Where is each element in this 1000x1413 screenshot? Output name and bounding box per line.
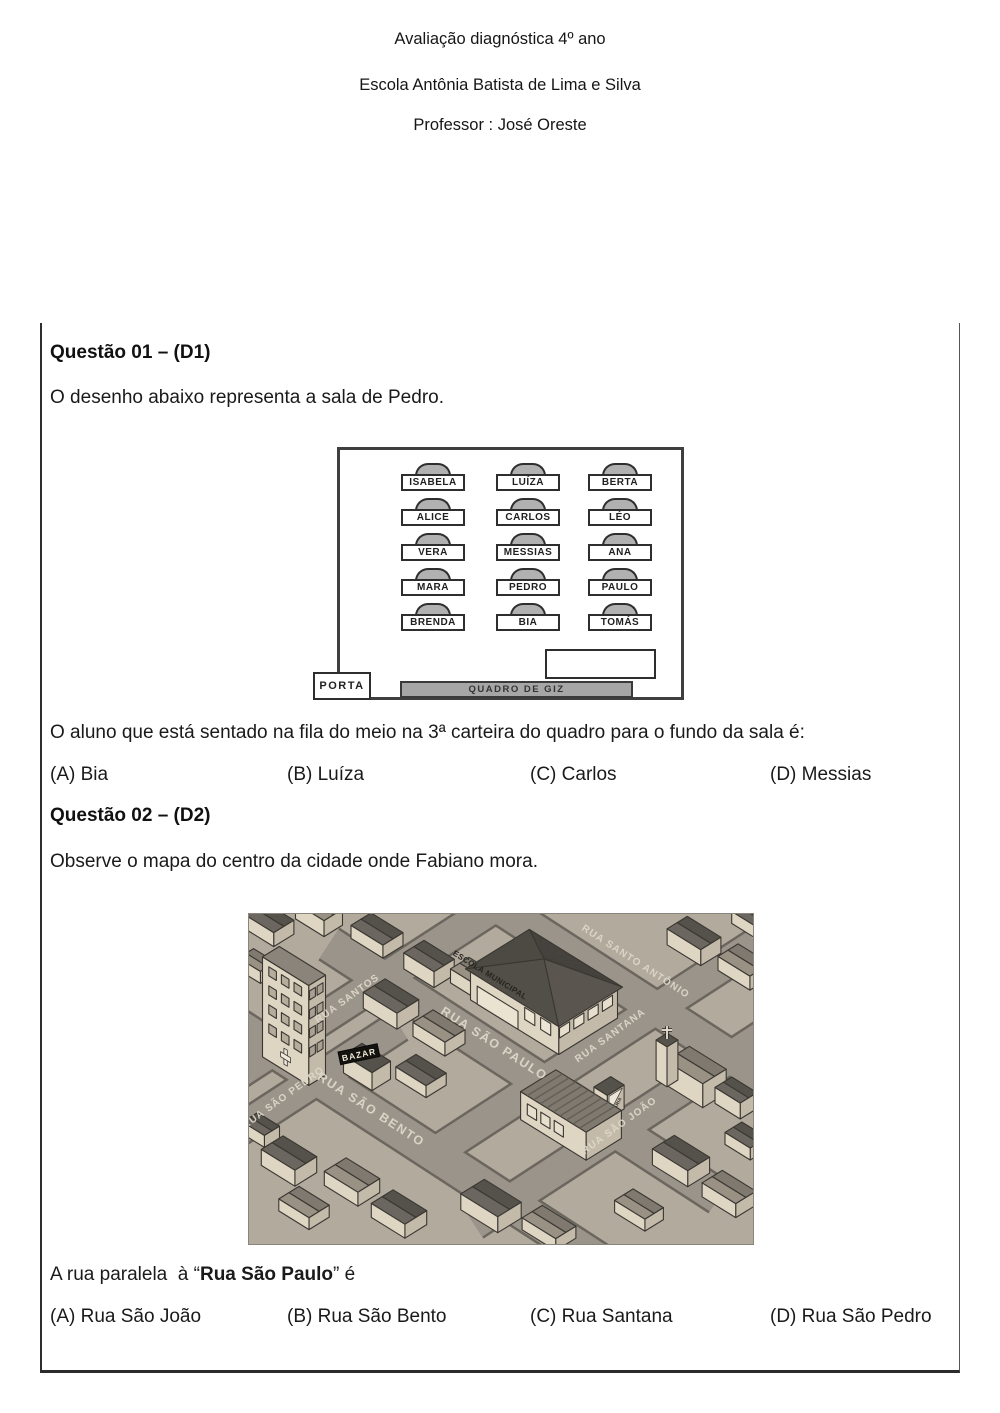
desk-name-plate: PAULO bbox=[588, 579, 652, 596]
classroom-diagram: ISABELALUÍZABERTAALICECARLOSLÉOVERAMESSI… bbox=[337, 447, 684, 700]
question2-title: Questão 02 – (D2) bbox=[50, 805, 211, 827]
option-q1-b: (B) Luíza bbox=[287, 764, 364, 786]
desk-name-plate: LÉO bbox=[588, 509, 652, 526]
city-map-svg: ESCOLA MUNICIPALBAZARPADARIARUA SANTO AN… bbox=[249, 914, 753, 1244]
option-q1-c: (C) Carlos bbox=[530, 764, 617, 786]
desk-luiza: LUÍZA bbox=[496, 463, 560, 491]
question2-intro: Observe o mapa do centro da cidade onde … bbox=[50, 851, 538, 873]
desk-leo: LÉO bbox=[588, 498, 652, 526]
desk-name-plate: LUÍZA bbox=[496, 474, 560, 491]
prompt-suffix: ” é bbox=[333, 1264, 355, 1285]
desk-paulo: PAULO bbox=[588, 568, 652, 596]
page-title: Avaliação diagnóstica 4º ano bbox=[0, 30, 1000, 49]
question1-prompt: O aluno que está sentado na fila do meio… bbox=[50, 722, 805, 744]
option-q2-b: (B) Rua São Bento bbox=[287, 1306, 446, 1328]
question2-prompt: A rua paralela à “Rua São Paulo” é bbox=[50, 1264, 355, 1286]
desk-isabela: ISABELA bbox=[401, 463, 465, 491]
desk-alice: ALICE bbox=[401, 498, 465, 526]
desk-name-plate: BIA bbox=[496, 614, 560, 631]
question1-title: Questão 01 – (D1) bbox=[50, 342, 211, 364]
prompt-prefix: A rua paralela à “ bbox=[50, 1264, 200, 1285]
door-label: PORTA bbox=[313, 672, 371, 700]
question2-options: (A) Rua São João(B) Rua São Bento(C) Rua… bbox=[50, 1306, 958, 1332]
professor-name: Professor : José Oreste bbox=[0, 116, 1000, 135]
desk-name-plate: VERA bbox=[401, 544, 465, 561]
desk-vera: VERA bbox=[401, 533, 465, 561]
desk-pedro: PEDRO bbox=[496, 568, 560, 596]
desk-name-plate: MARA bbox=[401, 579, 465, 596]
option-q1-d: (D) Messias bbox=[770, 764, 871, 786]
question1-intro: O desenho abaixo representa a sala de Pe… bbox=[50, 387, 444, 409]
teacher-desk bbox=[545, 649, 656, 679]
school-name: Escola Antônia Batista de Lima e Silva bbox=[0, 76, 1000, 95]
option-q2-a: (A) Rua São João bbox=[50, 1306, 201, 1328]
option-q2-d: (D) Rua São Pedro bbox=[770, 1306, 932, 1328]
desk-name-plate: ISABELA bbox=[401, 474, 465, 491]
desk-name-plate: PEDRO bbox=[496, 579, 560, 596]
prompt-bold-street: Rua São Paulo bbox=[200, 1264, 333, 1285]
desk-bia: BIA bbox=[496, 603, 560, 631]
desk-name-plate: ALICE bbox=[401, 509, 465, 526]
desk-messias: MESSIAS bbox=[496, 533, 560, 561]
city-map: ESCOLA MUNICIPALBAZARPADARIARUA SANTO AN… bbox=[248, 913, 754, 1245]
desk-name-plate: BERTA bbox=[588, 474, 652, 491]
desk-carlos: CARLOS bbox=[496, 498, 560, 526]
option-q1-a: (A) Bia bbox=[50, 764, 108, 786]
desk-brenda: BRENDA bbox=[401, 603, 465, 631]
question1-options: (A) Bia(B) Luíza(C) Carlos(D) Messias bbox=[50, 764, 958, 790]
desk-berta: BERTA bbox=[588, 463, 652, 491]
desk-ana: ANA bbox=[588, 533, 652, 561]
chalkboard: QUADRO DE GIZ bbox=[400, 681, 633, 698]
worksheet-page: Avaliação diagnóstica 4º ano Escola Antô… bbox=[0, 0, 1000, 1413]
desk-mara: MARA bbox=[401, 568, 465, 596]
desk-name-plate: TOMÁS bbox=[588, 614, 652, 631]
desk-name-plate: ANA bbox=[588, 544, 652, 561]
desk-name-plate: MESSIAS bbox=[496, 544, 560, 561]
option-q2-c: (C) Rua Santana bbox=[530, 1306, 673, 1328]
desk-tomas: TOMÁS bbox=[588, 603, 652, 631]
desk-name-plate: BRENDA bbox=[401, 614, 465, 631]
desk-name-plate: CARLOS bbox=[496, 509, 560, 526]
